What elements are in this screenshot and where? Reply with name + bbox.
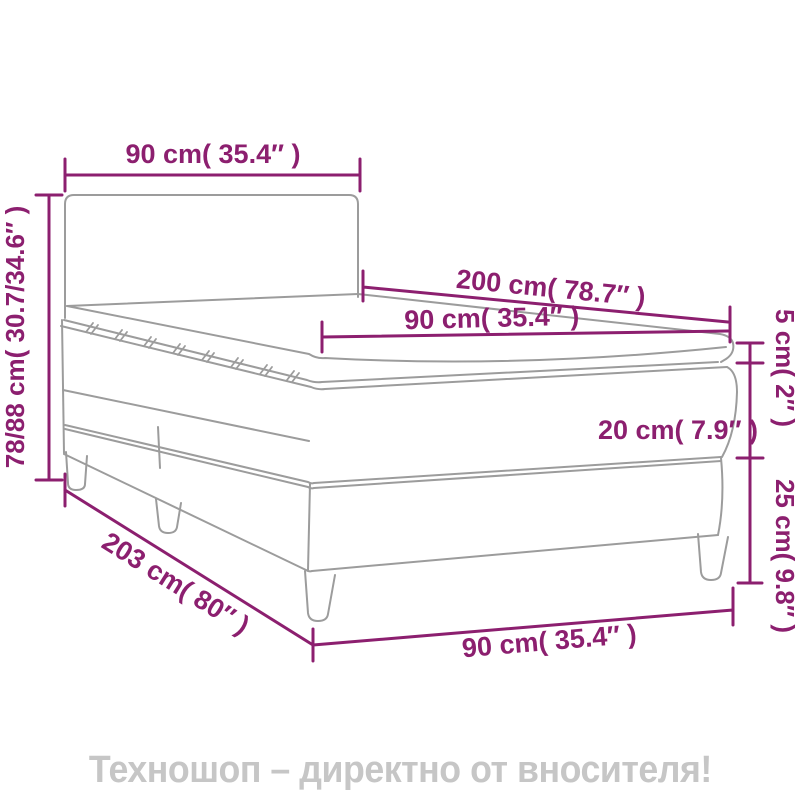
- dim-label-headboard-width: 90 cm( 35.4″ ): [125, 139, 300, 169]
- dim-label-base-width: 90 cm( 35.4″ ): [461, 619, 638, 664]
- box-corner-edge: [308, 484, 310, 570]
- bed-leg-foot-front: [305, 571, 335, 621]
- dimension-lines: [36, 159, 763, 661]
- dim-label-base-length: 203 cm( 80″ ): [97, 526, 255, 640]
- dim-label-mattress-height: 20 cm( 7.9″ ): [598, 415, 758, 445]
- bed-dimension-diagram: 90 cm( 35.4″ ) 78/88 cm( 30.7/34.6″ ) 20…: [0, 0, 800, 800]
- box-seam: [158, 427, 160, 468]
- topper-back-edge: [67, 294, 358, 306]
- dim-line-total-height: [36, 195, 62, 480]
- dim-line-height-stack: [737, 343, 763, 583]
- dim-line-base-length: [65, 474, 313, 661]
- dim-label-leg-height: 25 cm( 9.8″ ): [770, 479, 800, 633]
- bed-leg-foot-right: [698, 534, 728, 580]
- bed-left-edge: [62, 320, 64, 453]
- footer: Техношоп – директно от вносителя!: [0, 749, 800, 792]
- dim-label-mattress-width: 90 cm( 35.4″ ): [404, 301, 580, 336]
- dim-label-topper-height: 5 cm( 2″ ): [770, 309, 800, 427]
- dim-label-total-height: 78/88 cm( 30.7/34.6″ ): [0, 206, 30, 469]
- bed-leg-head-left: [66, 452, 87, 490]
- product-dimension-image: 90 cm( 35.4″ ) 78/88 cm( 30.7/34.6″ ) 20…: [0, 0, 800, 800]
- shop-watermark-text: Техношоп – директно от вносителя!: [89, 749, 712, 792]
- box-right-edge: [718, 458, 722, 535]
- box-bottom-edge: [64, 454, 718, 571]
